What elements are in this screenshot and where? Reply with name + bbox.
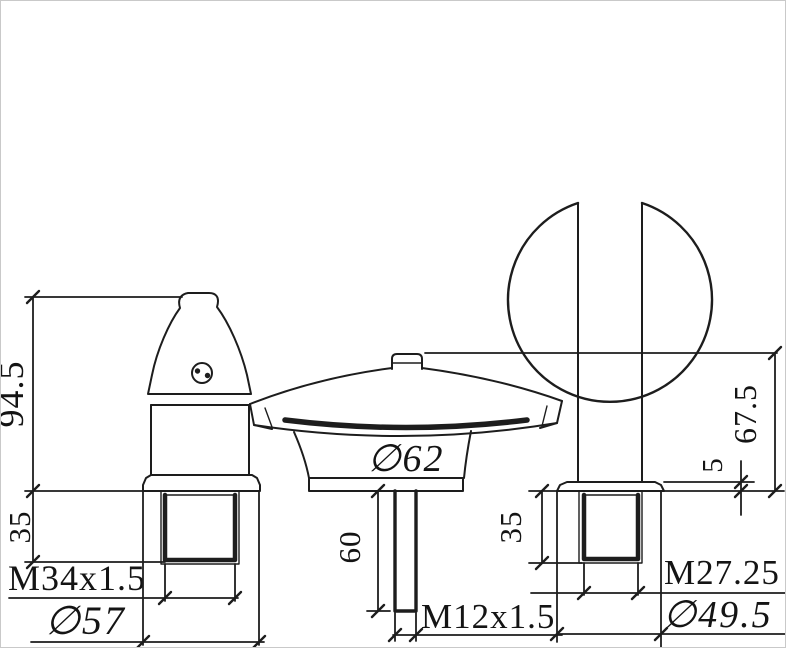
right-handle-flange-outline xyxy=(557,482,664,491)
left-thread-spec-label: M34x1.5 xyxy=(8,558,146,598)
left-thread-profile xyxy=(165,495,235,560)
left-handle-flange-outline xyxy=(143,475,260,491)
shank-thread-spec-label: M12x1.5 xyxy=(421,597,555,636)
right-thread-envelope xyxy=(579,491,642,563)
waterfall-outlet-slot xyxy=(285,420,527,428)
indicator-dot-left xyxy=(195,368,200,373)
right-handle-view xyxy=(508,203,712,563)
right-thread-spec-label: M27.25 xyxy=(664,553,780,592)
dimension-annotations: 94.5 35 M34x1.5 ∅57 ∅62 60 M12x1.5 xyxy=(1,291,785,648)
left-base-diameter-label: ∅57 xyxy=(45,598,126,643)
spout-dome-right-edge xyxy=(422,368,562,401)
indicator-dot-right xyxy=(205,373,210,378)
spout-neck-right-edge xyxy=(464,431,471,478)
shank-length-dimension-label: 60 xyxy=(332,531,367,564)
technical-drawing-canvas: 94.5 35 M34x1.5 ∅57 ∅62 60 M12x1.5 xyxy=(0,0,786,648)
spout-neck-left-edge xyxy=(294,432,309,478)
right-height-dimension-label: 67.5 xyxy=(727,384,763,444)
left-height-dimension-label: 94.5 xyxy=(1,361,31,428)
right-thread-profile xyxy=(584,495,638,559)
faucet-dimension-drawing: 94.5 35 M34x1.5 ∅57 ∅62 60 M12x1.5 xyxy=(1,1,786,648)
spout-rim-left-facet-inner-line xyxy=(265,408,272,427)
spout-rim-right-facet-inner-line xyxy=(542,406,547,426)
right-thread-length-dimension-label: 35 xyxy=(493,511,528,544)
right-flange-height-dimension-label: 5 xyxy=(697,457,729,473)
hot-cold-indicator-icon xyxy=(192,363,212,383)
right-handle-ball-outline xyxy=(508,203,712,402)
left-handle-view xyxy=(143,293,260,564)
center-spout-view xyxy=(250,354,562,611)
spout-dome-left-edge xyxy=(250,368,392,404)
left-thread-length-dimension-label: 35 xyxy=(2,511,37,544)
left-handle-bell-outline xyxy=(148,293,251,394)
spout-threaded-shank xyxy=(395,491,416,611)
spout-top-knob-outline xyxy=(392,354,422,369)
left-thread-envelope xyxy=(161,491,239,564)
right-base-diameter-label: ∅49.5 xyxy=(663,594,773,636)
spout-body-diameter-label: ∅62 xyxy=(367,438,444,480)
